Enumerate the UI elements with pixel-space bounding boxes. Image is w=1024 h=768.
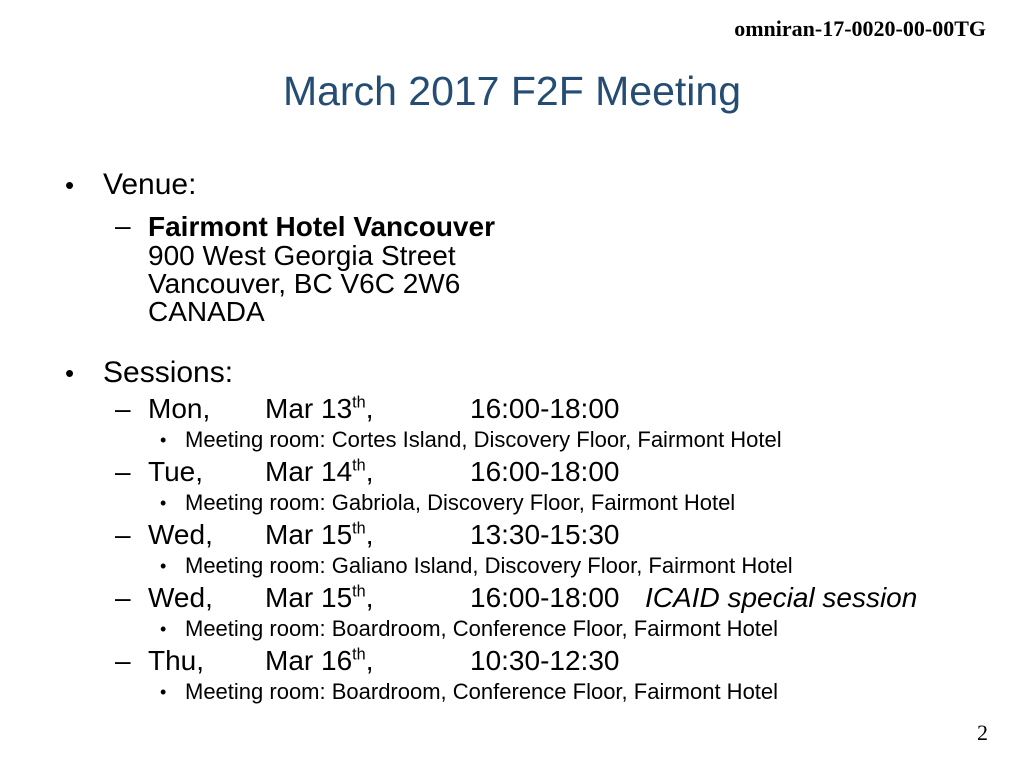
- date-ordinal: th: [352, 583, 366, 601]
- date-ordinal: th: [352, 646, 366, 664]
- session-row: – Wed, Mar 15th, 13:30-15:30: [60, 518, 1010, 551]
- page-number: 2: [977, 720, 988, 746]
- meeting-room-row: • Meeting room: Cortes Island, Discovery…: [60, 425, 1010, 455]
- address-line: Vancouver, BC V6C 2W6: [60, 270, 1010, 298]
- session-row: – Thu, Mar 16th, 10:30-12:30: [60, 644, 1010, 677]
- date-ordinal: th: [352, 520, 366, 538]
- address-line: 900 West Georgia Street: [60, 242, 1010, 270]
- session-date: Mar 15th,: [265, 581, 470, 614]
- document-number: omniran-17-0020-00-00TG: [734, 16, 986, 42]
- hotel-name: Fairmont Hotel Vancouver: [148, 211, 495, 242]
- venue-heading: • Venue:: [60, 166, 1010, 204]
- session-day: Tue,: [148, 455, 265, 488]
- meeting-room: Meeting room: Cortes Island, Discovery F…: [185, 427, 782, 452]
- session-time: 16:00-18:00: [470, 392, 645, 425]
- venue-label: Venue:: [103, 168, 196, 201]
- venue-details: – Fairmont Hotel Vancouver 900 West Geor…: [60, 212, 1010, 326]
- hotel-name-line: – Fairmont Hotel Vancouver: [60, 212, 1010, 242]
- dash-bullet-icon: –: [115, 455, 131, 488]
- session-time: 16:00-18:00: [470, 455, 645, 488]
- meeting-room-row: • Meeting room: Galiano Island, Discover…: [60, 551, 1010, 581]
- slide: omniran-17-0020-00-00TG March 2017 F2F M…: [0, 0, 1024, 768]
- meeting-room: Meeting room: Gabriola, Discovery Floor,…: [185, 490, 735, 515]
- slide-title: March 2017 F2F Meeting: [0, 68, 1024, 115]
- bullet-icon: •: [65, 354, 74, 392]
- sessions-heading: • Sessions:: [60, 354, 1010, 392]
- session-day: Thu,: [148, 644, 265, 677]
- bullet-icon: •: [65, 166, 74, 204]
- session-date: Mar 13th,: [265, 392, 470, 425]
- slide-body: • Venue: – Fairmont Hotel Vancouver 900 …: [60, 166, 1010, 707]
- dash-bullet-icon: –: [115, 392, 131, 425]
- bullet-icon: •: [160, 488, 166, 518]
- date-ordinal: th: [352, 457, 366, 475]
- dash-bullet-icon: –: [115, 644, 131, 677]
- session-date: Mar 15th,: [265, 518, 470, 551]
- dash-bullet-icon: –: [115, 211, 131, 241]
- meeting-room-row: • Meeting room: Gabriola, Discovery Floo…: [60, 488, 1010, 518]
- session-day: Mon,: [148, 392, 265, 425]
- session-time: 13:30-15:30: [470, 518, 645, 551]
- meeting-room: Meeting room: Boardroom, Conference Floo…: [185, 616, 778, 641]
- session-date: Mar 14th,: [265, 455, 470, 488]
- meeting-room: Meeting room: Boardroom, Conference Floo…: [185, 679, 778, 704]
- bullet-icon: •: [160, 614, 166, 644]
- session-date: Mar 16th,: [265, 644, 470, 677]
- session-row: – Tue, Mar 14th, 16:00-18:00: [60, 455, 1010, 488]
- bullet-icon: •: [160, 551, 166, 581]
- bullet-icon: •: [160, 677, 166, 707]
- meeting-room-row: • Meeting room: Boardroom, Conference Fl…: [60, 677, 1010, 707]
- dash-bullet-icon: –: [115, 518, 131, 551]
- meeting-room: Meeting room: Galiano Island, Discovery …: [185, 553, 793, 578]
- dash-bullet-icon: –: [115, 581, 131, 614]
- session-row: – Wed, Mar 15th, 16:00-18:00 ICAID speci…: [60, 581, 1010, 614]
- session-day: Wed,: [148, 518, 265, 551]
- bullet-icon: •: [160, 425, 166, 455]
- session-row: – Mon, Mar 13th, 16:00-18:00: [60, 392, 1010, 425]
- date-ordinal: th: [352, 394, 366, 412]
- session-day: Wed,: [148, 581, 265, 614]
- meeting-room-row: • Meeting room: Boardroom, Conference Fl…: [60, 614, 1010, 644]
- session-time: 16:00-18:00: [470, 581, 645, 614]
- sessions-list: – Mon, Mar 13th, 16:00-18:00 • Meeting r…: [60, 392, 1010, 707]
- session-time: 10:30-12:30: [470, 644, 645, 677]
- address-line: CANADA: [60, 298, 1010, 326]
- session-note: ICAID special session: [645, 581, 917, 614]
- sessions-label: Sessions:: [103, 356, 233, 389]
